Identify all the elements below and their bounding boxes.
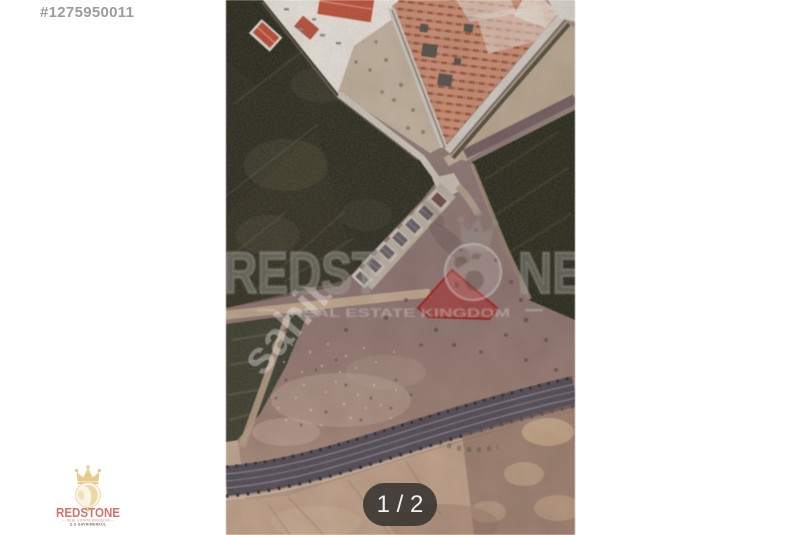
svg-text:S.S GAYRIMENKUL: S.S GAYRIMENKUL <box>70 523 106 527</box>
svg-text:REAL ESTATE KINGDOM: REAL ESTATE KINGDOM <box>290 308 510 320</box>
svg-text:NE: NE <box>518 241 575 306</box>
svg-text:REDST: REDST <box>226 241 380 306</box>
